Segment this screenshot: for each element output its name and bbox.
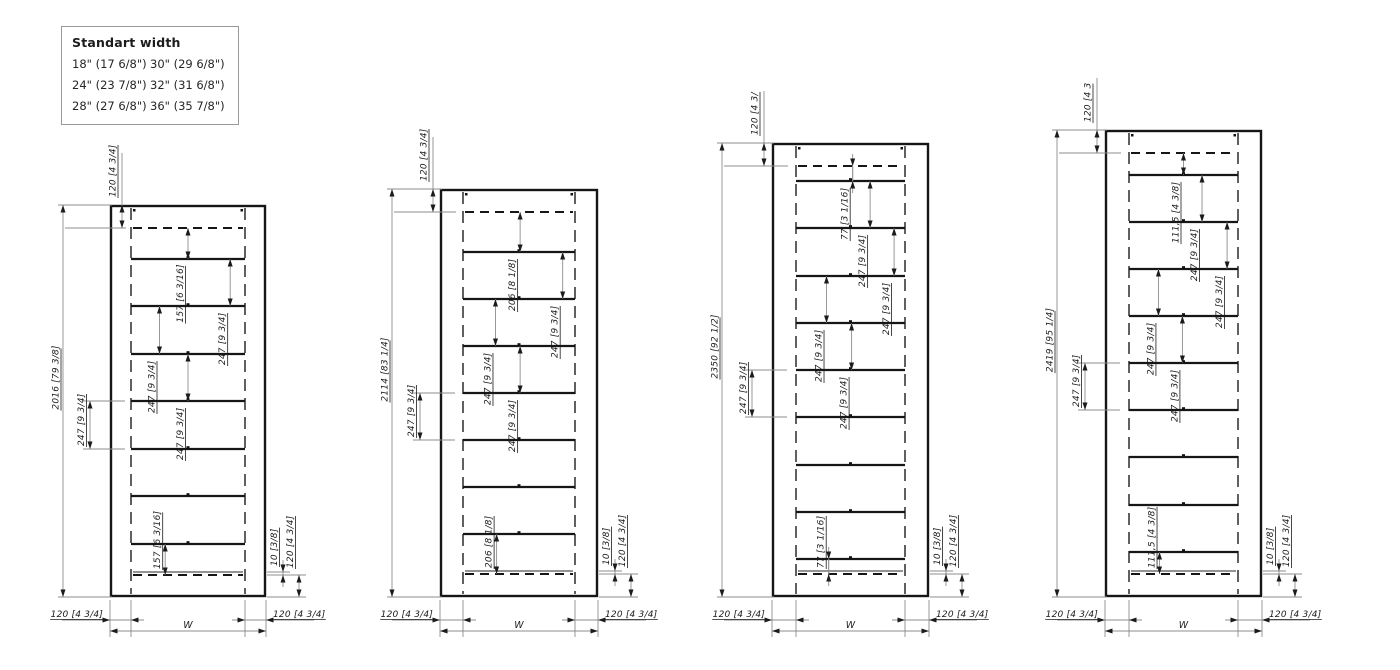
right-panel-dim-label: 120 [4 3/4] xyxy=(605,610,658,620)
top-inset-dim-label: 120 [4 3 xyxy=(1084,82,1094,122)
top-inset-dim-label: 120 [4 3/ xyxy=(751,92,761,135)
total-height-dim-label: 2419 [95 1/4] xyxy=(1046,308,1056,372)
shelf-gap-dim-label: 111,5 [4 3/8] xyxy=(1148,506,1158,568)
external-gap-dim-label: 247 [9 3/4] xyxy=(77,393,87,446)
base-height-dim-label: 120 [4 3/4] xyxy=(618,514,628,567)
left-panel-dim-label: 120 [4 3/4] xyxy=(1046,610,1099,620)
shelf-gap-dim-label: 247 [9 3/4] xyxy=(1215,275,1225,328)
total-height-dim-label: 2114 [83 1/4] xyxy=(381,337,391,401)
shelf-gap-dim-label: 111,5 [4 3/8] xyxy=(1172,182,1182,244)
shelf-gap-dim-label: 247 [9 3/4] xyxy=(840,376,850,429)
shelf-gap-dim-label: 247 [9 3/4] xyxy=(1190,228,1200,281)
shelf-gap-dim-label: 247 [9 3/4] xyxy=(551,305,561,358)
base-height-dim-label: 120 [4 3/4] xyxy=(1282,514,1292,567)
shelf-gap-dim-label: 247 [9 3/4] xyxy=(483,352,493,405)
overall-width-label: W xyxy=(514,620,524,631)
shelf-unit-2114: 2114 [83 1/4]120 [4 3/4]206 [8 1/8]247 [… xyxy=(380,128,658,637)
shelf-gap-dim-label: 247 [9 3/4] xyxy=(176,407,186,460)
top-inset-dim-label: 120 [4 3/4] xyxy=(109,144,119,197)
external-gap-dim-label: 247 [9 3/4] xyxy=(1072,354,1082,407)
external-gap-dim-label: 247 [9 3/4] xyxy=(739,361,749,414)
shelf-gap-dim-label: 77 [3 1/16] xyxy=(841,187,851,240)
overall-width-label: W xyxy=(183,620,193,631)
total-height-dim-label: 2350 [92 1/2] xyxy=(711,314,721,378)
shelf-gap-dim-label: 157 [6 3/16] xyxy=(153,510,163,569)
dimension-annotations: 2016 [79 3/8]120 [4 3/4]157 [6 3/16]247 … xyxy=(50,144,326,637)
shelf-gap-dim-label: 206 [8 1/8] xyxy=(508,258,518,311)
overall-width-label: W xyxy=(1179,620,1189,631)
shelf-gap-dim-label: 247 [9 3/4] xyxy=(1146,322,1156,375)
back-gap-dim-label: 10 [3/8] xyxy=(1266,527,1276,565)
total-height-dim-label: 2016 [79 3/8] xyxy=(52,345,62,409)
back-gap-dim-label: 10 [3/8] xyxy=(270,528,280,566)
shelf-gap-dim-label: 247 [9 3/4] xyxy=(815,329,825,382)
right-panel-dim-label: 120 [4 3/4] xyxy=(1269,610,1322,620)
shelf-gap-dim-label: 206 [8 1/8] xyxy=(485,515,495,568)
shelf-gap-dim-label: 247 [9 3/4] xyxy=(218,312,228,365)
left-panel-dim-label: 120 [4 3/4] xyxy=(51,610,104,620)
shelf-gap-dim-label: 247 [9 3/4] xyxy=(508,399,518,452)
right-panel-dim-label: 120 [4 3/4] xyxy=(936,610,989,620)
left-panel-dim-label: 120 [4 3/4] xyxy=(713,610,766,620)
left-panel-dim-label: 120 [4 3/4] xyxy=(381,610,434,620)
shelf-gap-dim-label: 247 [9 3/4] xyxy=(882,282,892,335)
dimension-annotations: 2419 [95 1/4]120 [4 3111,5 [4 3/8]247 [9… xyxy=(1045,78,1322,637)
shelf-unit-2016: 2016 [79 3/8]120 [4 3/4]157 [6 3/16]247 … xyxy=(50,144,326,637)
dimension-annotations: 2350 [92 1/2]120 [4 3/77 [3 1/16]247 [9 … xyxy=(711,91,989,637)
shelf-gap-dim-label: 157 [6 3/16] xyxy=(176,264,186,323)
shelf-unit-2350: 2350 [92 1/2]120 [4 3/77 [3 1/16]247 [9 … xyxy=(711,91,989,637)
back-gap-dim-label: 10 [3/8] xyxy=(602,527,612,565)
shelf-gap-dim-label: 247 [9 3/4] xyxy=(1170,369,1180,422)
overall-width-label: W xyxy=(846,620,856,631)
back-gap-dim-label: 10 [3/8] xyxy=(933,527,943,565)
base-height-dim-label: 120 [4 3/4] xyxy=(286,515,296,568)
shelf-gap-dim-label: 247 [9 3/4] xyxy=(148,360,158,413)
cabinet-structure xyxy=(1106,131,1261,596)
blueprint-canvas: Standart width 18" (17 6/8")30" (29 6/8"… xyxy=(0,0,1400,670)
external-gap-dim-label: 247 [9 3/4] xyxy=(407,384,417,437)
cabinet-structure xyxy=(441,190,597,596)
top-inset-dim-label: 120 [4 3/4] xyxy=(420,128,430,181)
dimension-annotations: 2114 [83 1/4]120 [4 3/4]206 [8 1/8]247 [… xyxy=(380,128,658,637)
shelf-gap-dim-label: 77 [3 1/16] xyxy=(817,515,827,568)
base-height-dim-label: 120 [4 3/4] xyxy=(949,514,959,567)
shelf-gap-dim-label: 247 [9 3/4] xyxy=(858,234,868,287)
right-panel-dim-label: 120 [4 3/4] xyxy=(273,610,326,620)
shelf-units-technical-drawing: 2016 [79 3/8]120 [4 3/4]157 [6 3/16]247 … xyxy=(0,0,1400,670)
shelf-unit-2419: 2419 [95 1/4]120 [4 3111,5 [4 3/8]247 [9… xyxy=(1045,78,1322,637)
